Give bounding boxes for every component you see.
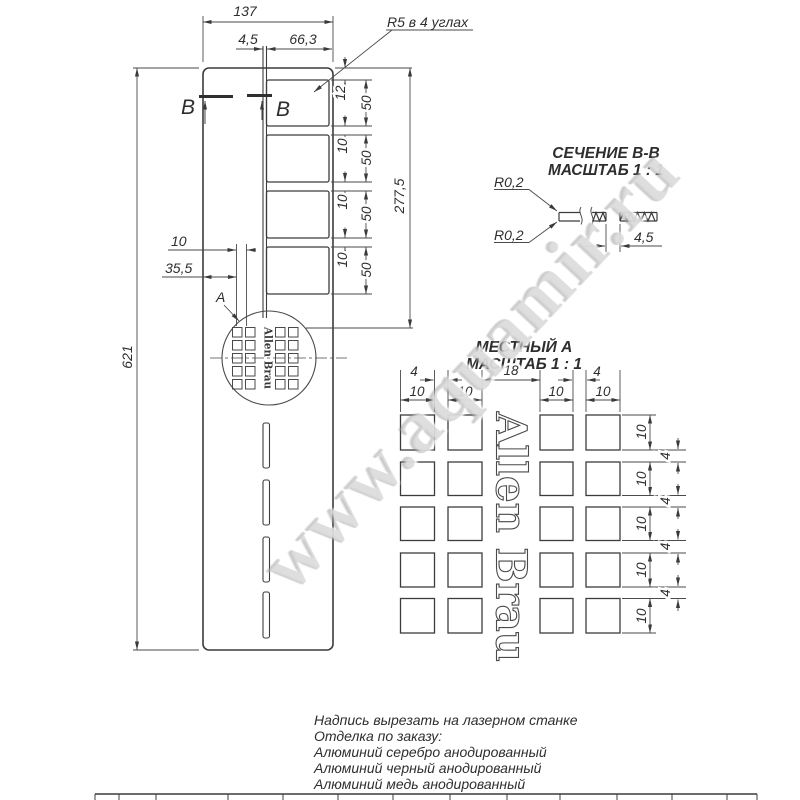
dim-windows-span: 277,5 [391, 178, 407, 214]
break-symbol [580, 207, 593, 225]
note-line: Алюминий медь анодированный [313, 776, 525, 792]
drawing-sheet: Allen Brau В В [0, 0, 800, 800]
detail-row-height-5: 10 [634, 608, 649, 624]
detail-row-gap-1: 4 [658, 452, 673, 460]
dim-window-gap-3: 10 [335, 252, 350, 268]
knurl-teeth-right [620, 213, 657, 222]
drain-slit [263, 592, 270, 638]
detail-col-width-2: 10 [457, 384, 473, 399]
detail-row-height-4: 10 [634, 562, 649, 578]
dim-top-offset: 12 [333, 85, 348, 101]
drain-slit [263, 480, 270, 525]
section-view-scale: МАСШТАБ 1 : 1 [548, 162, 664, 179]
detail-row-height-2: 10 [634, 471, 649, 487]
note-line: Алюминий серебро анодированный [313, 744, 547, 760]
detail-col-width-1: 10 [409, 384, 425, 399]
detail-top-gap-1: 4 [410, 364, 418, 379]
dim-window-height-1: 50 [359, 95, 374, 111]
corner-radius-note: R5 в 4 углах [387, 14, 469, 30]
engraved-brand-text-small: Allen Brau [262, 326, 276, 389]
dim-pattern-offset: 10 [171, 233, 187, 249]
window-opening [267, 135, 330, 182]
drain-slit [263, 423, 270, 468]
detail-col-width-3: 10 [548, 384, 564, 399]
dim-radius-top: R0,2 [494, 174, 524, 190]
dim-window-gap-1: 10 [335, 138, 350, 154]
detail-top-gap-2: 18 [503, 363, 519, 378]
dim-window-gap-2: 10 [335, 194, 350, 210]
technical-drawing: Allen Brau В В [0, 0, 800, 800]
note-line: Отделка по заказу: [314, 728, 442, 744]
dim-window-width: 66,3 [289, 31, 316, 47]
drain-slit [263, 537, 270, 582]
detail-row-gap-3: 4 [658, 543, 673, 551]
detail-dimensions [401, 370, 687, 633]
dim-pattern-left: 35,5 [165, 260, 192, 276]
detail-row-gap-4: 4 [658, 589, 673, 597]
notes-block: Надпись вырезать на лазерном станке Отде… [313, 712, 578, 792]
dim-section-slot-width: 4,5 [634, 229, 654, 245]
detail-ref-label: A [215, 289, 225, 305]
section-cut-marks [199, 96, 272, 125]
window-opening [267, 191, 330, 238]
section-label-right: В [276, 98, 290, 121]
dim-window-height-2: 50 [359, 150, 374, 166]
section-label-left: В [181, 96, 195, 119]
detail-view: МЕСТНЫЙ А МАСШТАБ 1 : 1 Allen Brau [401, 338, 687, 662]
detail-col-width-4: 10 [595, 384, 611, 399]
dim-overall-height: 621 [119, 345, 135, 368]
section-view: СЕЧЕНИЕ В-В МАСШТАБ 1 : 1 R0,2 R0,2 4,5 [494, 145, 664, 252]
engraved-brand-text-large: Allen Brau [487, 411, 536, 662]
title-block-columns [95, 794, 757, 800]
window-opening [267, 247, 330, 294]
dim-window-height-4: 50 [359, 262, 374, 278]
title-block-top [95, 794, 757, 800]
dim-slot-width: 4,5 [238, 31, 258, 47]
section-profile [559, 207, 657, 225]
detail-row-gap-2: 4 [658, 497, 673, 505]
note-line: Алюминий черный анодированный [313, 760, 542, 776]
dim-overall-width: 137 [233, 3, 258, 19]
dim-window-height-3: 50 [359, 206, 374, 222]
section-strip-left [559, 213, 580, 222]
detail-view-scale: МАСШТАБ 1 : 1 [466, 356, 582, 373]
section-view-title: СЕЧЕНИЕ В-В [552, 145, 659, 162]
dim-radius-bottom: R0,2 [494, 227, 524, 243]
detail-top-gap-3: 4 [593, 364, 601, 379]
detail-view-title: МЕСТНЫЙ А [476, 338, 573, 356]
note-line: Надпись вырезать на лазерном станке [314, 712, 578, 728]
detail-a-callout: Allen Brau [210, 311, 347, 405]
detail-row-height-1: 10 [634, 424, 649, 440]
drain-slits [263, 423, 270, 638]
knurl-teeth-left [592, 213, 606, 222]
detail-row-height-3: 10 [634, 516, 649, 532]
